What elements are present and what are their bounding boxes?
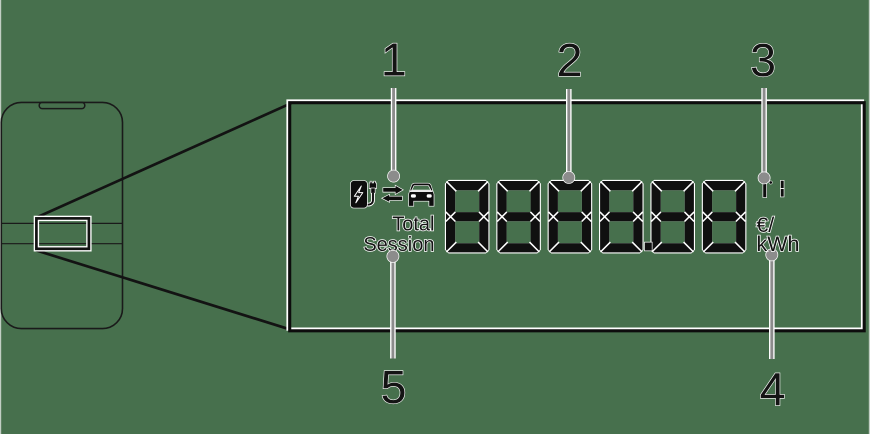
svg-text:3: 3: [750, 34, 776, 86]
svg-text:4: 4: [760, 363, 786, 415]
svg-text:Session: Session: [363, 234, 434, 256]
svg-text:2: 2: [557, 34, 583, 86]
svg-text:kWh: kWh: [757, 232, 800, 256]
svg-text:1: 1: [381, 34, 407, 86]
svg-text:Total: Total: [392, 213, 434, 235]
svg-text:5: 5: [381, 361, 407, 413]
